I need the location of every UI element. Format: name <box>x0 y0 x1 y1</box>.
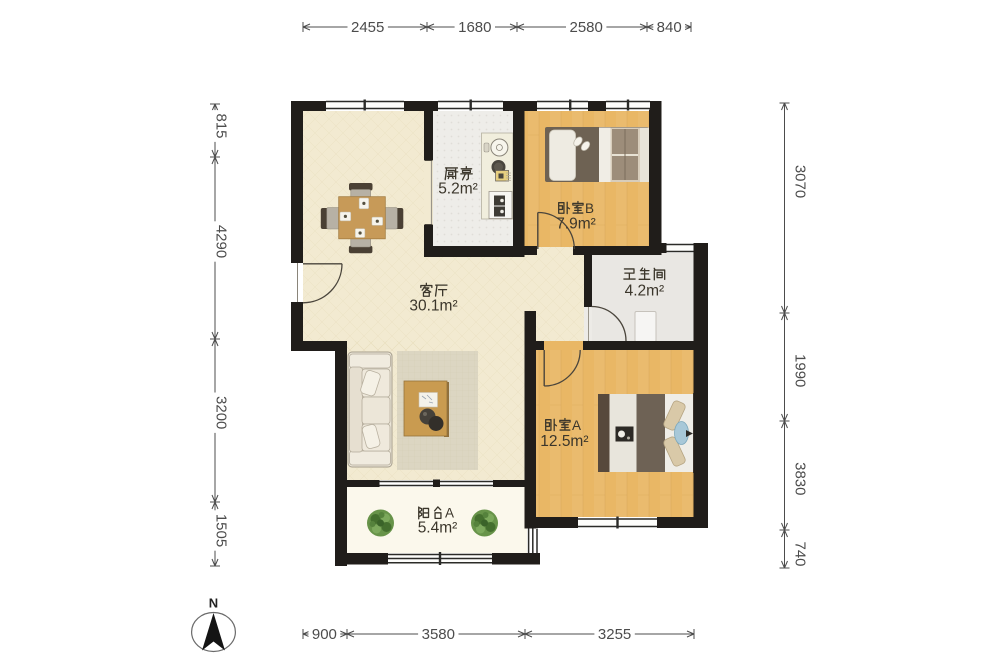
svg-text:N: N <box>209 596 218 611</box>
svg-text:5.4m²: 5.4m² <box>418 520 458 537</box>
svg-text:840: 840 <box>657 19 682 36</box>
svg-text:3200: 3200 <box>213 396 230 429</box>
svg-text:740: 740 <box>792 541 809 566</box>
svg-text:1990: 1990 <box>792 354 809 387</box>
svg-text:1680: 1680 <box>458 19 491 36</box>
svg-text:4290: 4290 <box>213 225 230 258</box>
svg-text:3255: 3255 <box>598 626 631 643</box>
svg-text:815: 815 <box>213 113 230 138</box>
svg-text:2580: 2580 <box>570 19 603 36</box>
svg-text:B: B <box>585 201 594 216</box>
svg-text:2455: 2455 <box>351 19 384 36</box>
svg-text:A: A <box>572 418 581 433</box>
svg-text:A: A <box>445 506 454 521</box>
svg-text:1505: 1505 <box>213 514 230 547</box>
svg-text:30.1m²: 30.1m² <box>409 298 457 315</box>
svg-text:3070: 3070 <box>792 165 809 198</box>
svg-text:12.5m²: 12.5m² <box>540 433 588 450</box>
svg-text:3580: 3580 <box>422 626 455 643</box>
svg-text:5.2m²: 5.2m² <box>438 181 478 198</box>
svg-text:4.2m²: 4.2m² <box>625 283 665 300</box>
svg-text:3830: 3830 <box>792 462 809 495</box>
svg-text:7.9m²: 7.9m² <box>556 216 596 233</box>
svg-text:900: 900 <box>312 626 337 643</box>
